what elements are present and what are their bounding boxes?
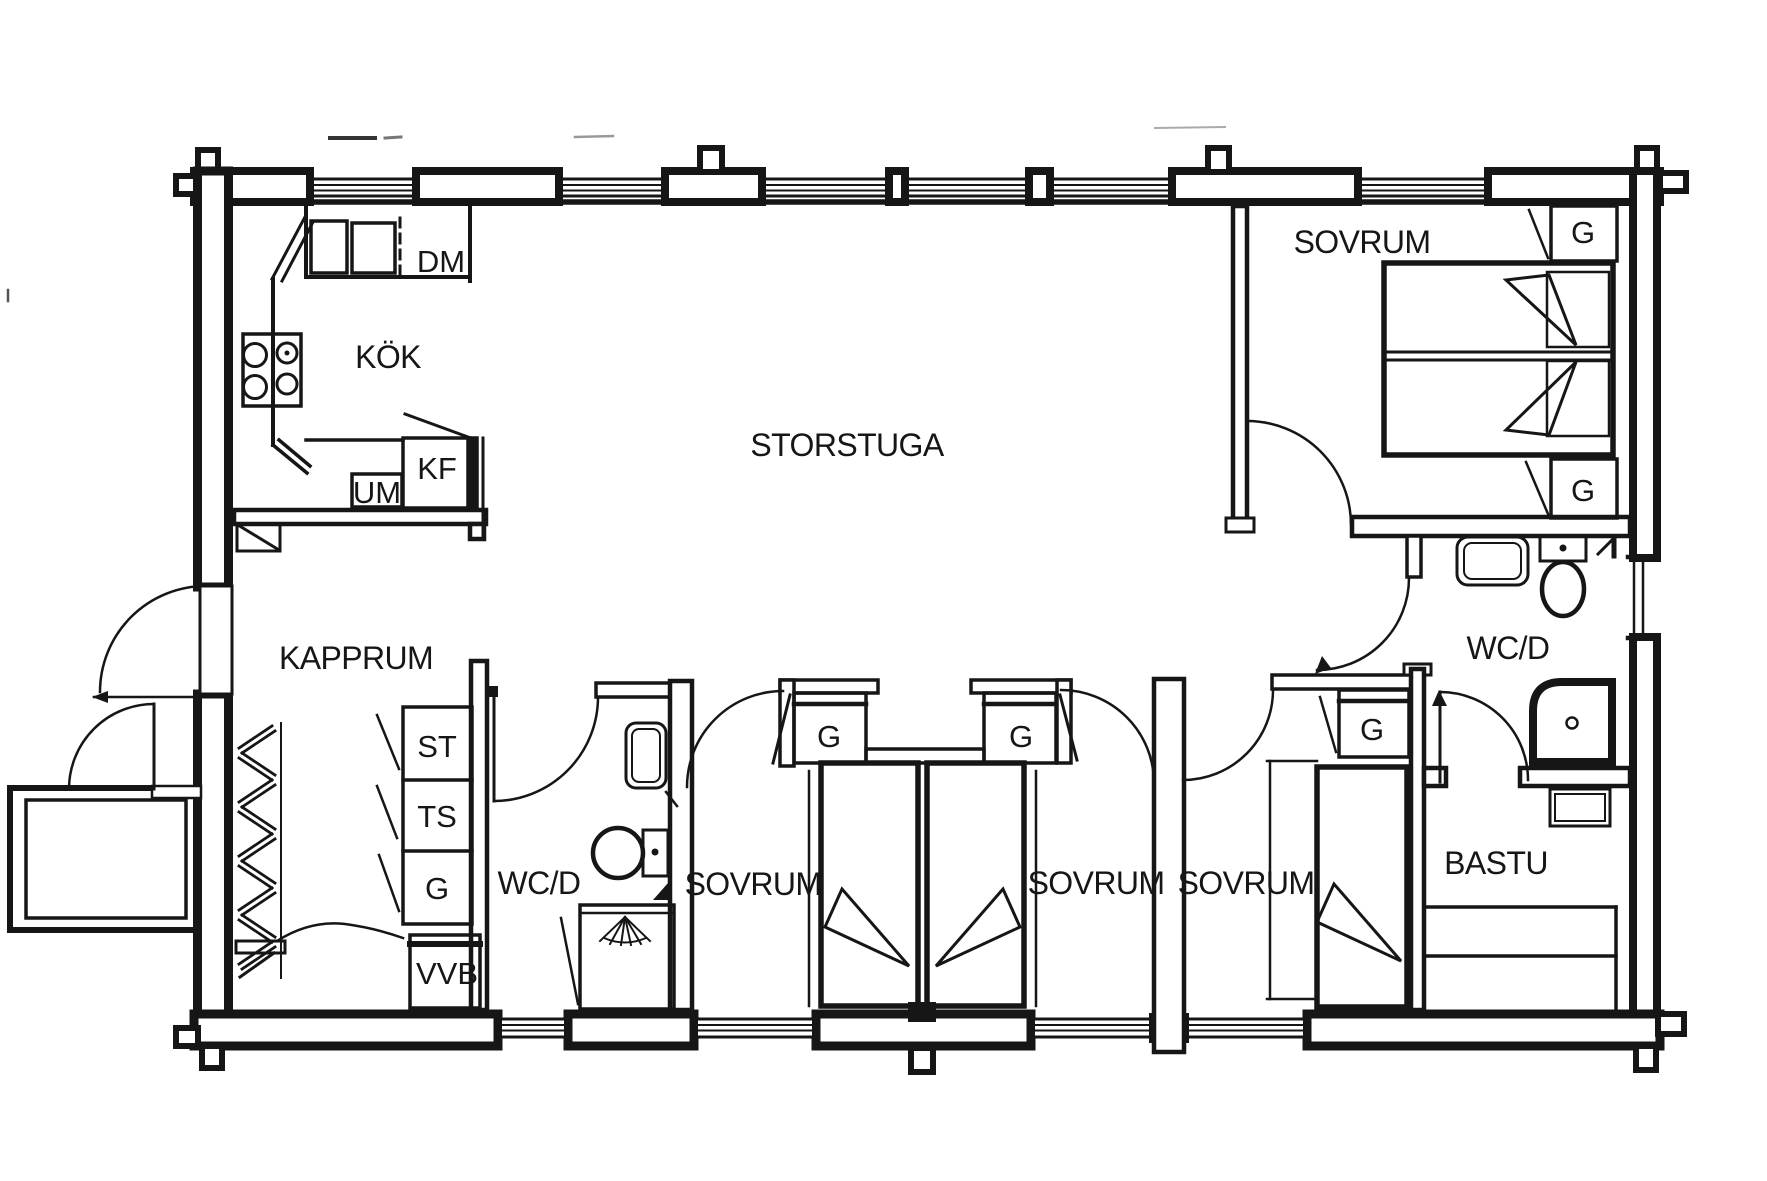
svg-text:BASTU: BASTU [1444, 845, 1548, 881]
svg-text:G: G [1360, 712, 1384, 747]
svg-text:KAPPRUM: KAPPRUM [279, 640, 433, 676]
svg-text:G: G [425, 871, 449, 906]
svg-text:UM: UM [353, 475, 401, 510]
svg-text:ST: ST [417, 729, 457, 764]
svg-text:G: G [1571, 215, 1595, 250]
svg-text:VVB: VVB [416, 956, 478, 991]
svg-text:G: G [1009, 719, 1033, 754]
svg-text:G: G [1571, 473, 1595, 508]
svg-text:SOVRUM: SOVRUM [685, 866, 822, 902]
svg-text:WC/D: WC/D [498, 865, 581, 901]
svg-text:WC/D: WC/D [1467, 630, 1550, 666]
svg-text:KF: KF [417, 451, 457, 486]
svg-text:STORSTUGA: STORSTUGA [750, 427, 944, 463]
svg-text:G: G [817, 719, 841, 754]
svg-text:DM: DM [417, 244, 465, 279]
svg-text:SOVRUM: SOVRUM [1178, 865, 1315, 901]
svg-text:SOVRUM: SOVRUM [1294, 224, 1431, 260]
svg-text:SOVRUM: SOVRUM [1028, 865, 1165, 901]
svg-text:TS: TS [417, 799, 457, 834]
svg-text:KÖK: KÖK [355, 339, 421, 375]
